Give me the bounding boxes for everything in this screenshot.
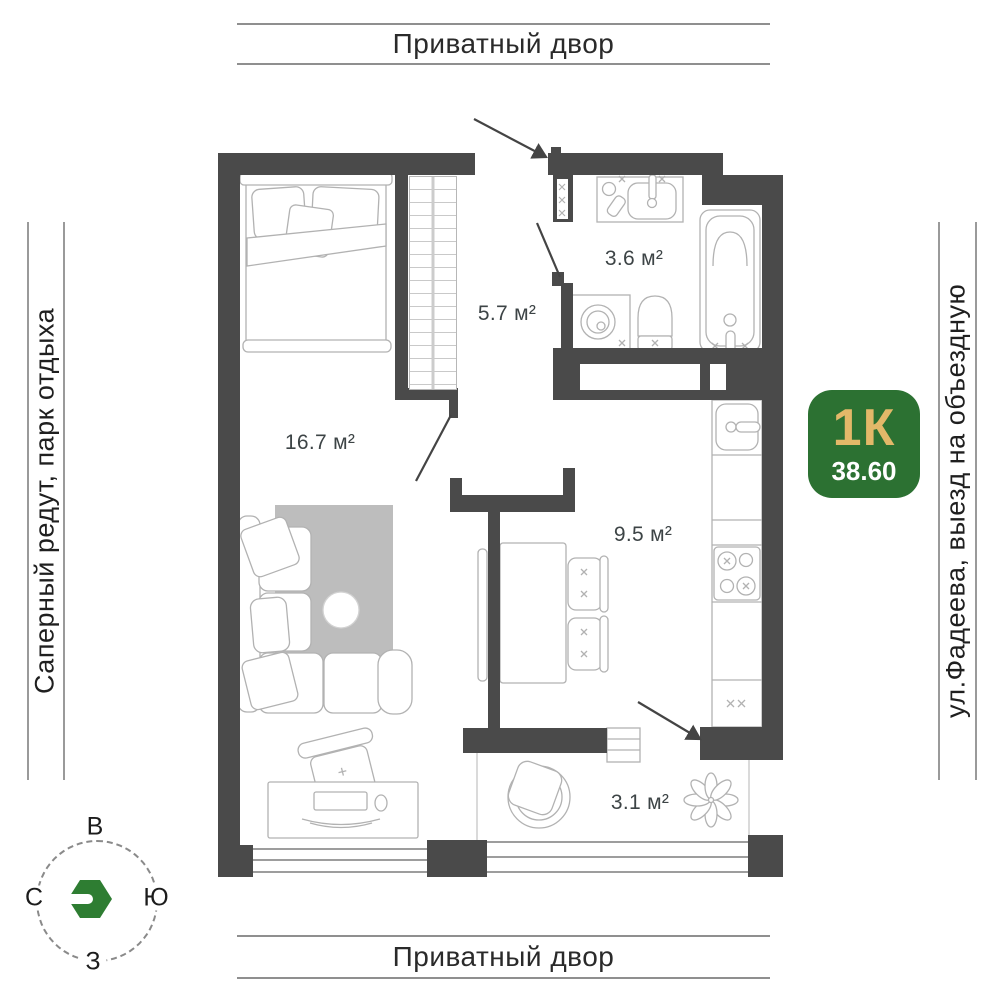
balcony-door-swing	[638, 702, 700, 739]
compass-logo-icon	[68, 877, 112, 921]
dining-table	[500, 543, 566, 683]
floor-plan	[0, 0, 1000, 1000]
wardrobe	[409, 176, 457, 390]
living-room-window	[253, 849, 427, 872]
entrance-door-swing	[474, 119, 546, 157]
compass-west-label: З	[79, 950, 106, 975]
room-area-label-kitchen: 9.5 м²	[614, 523, 672, 547]
compass-north-label: С	[19, 886, 49, 911]
compass-east-label: В	[81, 815, 110, 840]
room-area-label-balcony: 3.1 м²	[611, 791, 669, 815]
bathtub	[700, 210, 760, 355]
room-area-label-bathroom: 3.6 м²	[605, 247, 663, 271]
dining-chairs	[568, 556, 608, 672]
unit-type-label: 1К	[833, 402, 896, 454]
tv	[478, 549, 487, 681]
unit-badge: 1К 38.60	[808, 390, 920, 498]
toilet	[638, 296, 672, 350]
coffee-table	[323, 592, 359, 628]
bathroom-door-swing	[537, 223, 560, 277]
kitchen-sink	[716, 404, 760, 450]
bathroom-sink	[597, 175, 683, 222]
round-chair	[506, 759, 570, 828]
room-area-label-living-room: 16.7 м²	[285, 431, 355, 455]
balcony-glazing	[487, 842, 748, 872]
washing-machine	[571, 295, 630, 350]
living-room-door-swing	[416, 415, 451, 481]
room-area-label-hallway: 5.7 м²	[478, 302, 536, 326]
desk	[268, 782, 418, 838]
unit-area-value: 38.60	[831, 457, 896, 486]
bed	[240, 173, 392, 352]
compass-south-label: Ю	[137, 886, 174, 911]
plant	[684, 773, 738, 827]
balcony-sill-cabinet	[607, 728, 640, 762]
